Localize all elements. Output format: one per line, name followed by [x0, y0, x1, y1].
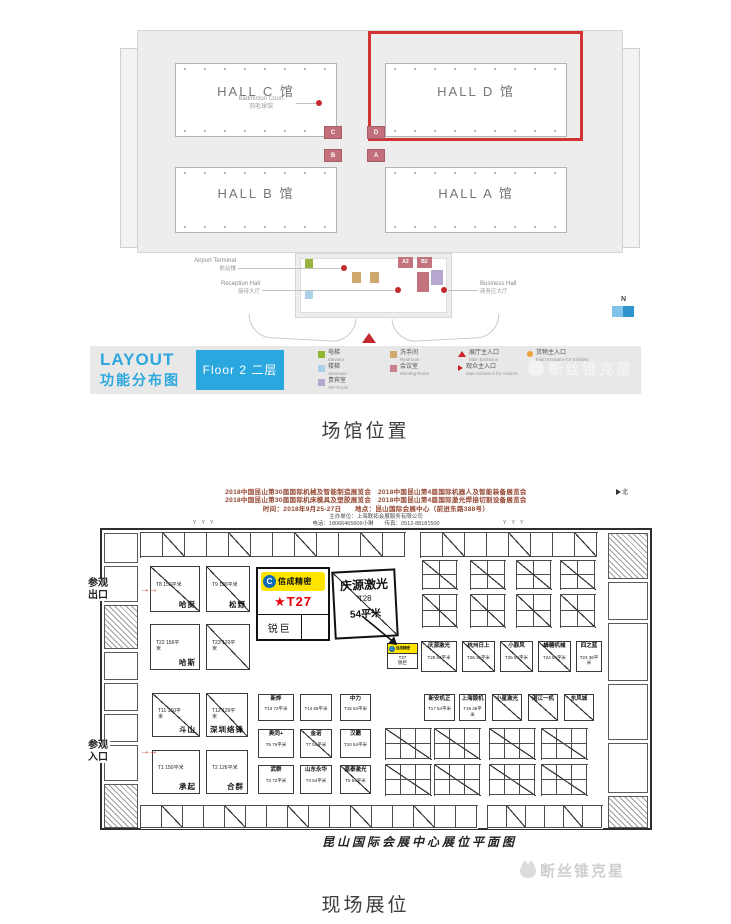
business-hall-cn: 商务区大厅 [480, 289, 508, 295]
page: HALL C 馆 Badminton Court 羽毛球馆 HALL D 馆 H… [0, 0, 731, 924]
booth-cell [361, 533, 383, 557]
legend-label-en: Main Entrance for Exhibits [536, 357, 589, 362]
booth-cell-diagonal [414, 806, 434, 827]
hall-c-sublabel: Badminton Court 羽毛球馆 [228, 96, 294, 111]
legend-label: 会议室Meeting Room [400, 364, 429, 376]
booth: 新烨T13 72平米 [258, 694, 294, 721]
legend-label: 贵宾室VIP Room [328, 378, 348, 390]
legend-square-icon [318, 351, 325, 358]
booth-label: 湛江一机 [529, 696, 557, 702]
hall-connector-c: C [324, 126, 342, 139]
booth-cell [564, 806, 583, 828]
cluster-diagonal [561, 561, 596, 590]
booth: 承起T1 150平米 [152, 750, 200, 794]
booth-label: 嘉泰激光 [341, 767, 370, 773]
booth-cell [351, 806, 372, 828]
legend-label-cn: 洗手间 [400, 350, 420, 357]
booth: 金诺T7 54平米 [300, 729, 332, 758]
booth-label: 斗山 [179, 726, 196, 734]
visitor-exit-label: 参观出口 [86, 578, 110, 601]
booth-label: 东风城 [565, 696, 593, 702]
cat-watermark-icon [528, 362, 544, 376]
mini-brand-name: 信成精密 [396, 646, 410, 651]
booth-cell [309, 806, 330, 828]
booth-label: 奥同+ [259, 731, 293, 737]
legend-label-en: Main Entrance [469, 357, 499, 362]
featured-company-name: 庆源激光 [334, 574, 395, 594]
cluster-diagonal [471, 595, 506, 628]
booth: 杭州日上T26 36平米 [462, 641, 495, 672]
booth-label: 新安机正 [425, 696, 454, 702]
caption-venue-location: 场馆位置 [0, 416, 731, 443]
booth-cell-diagonal [229, 533, 250, 556]
legend-square-icon [318, 379, 325, 386]
booth-cell [443, 533, 465, 557]
booth-cell [372, 806, 393, 828]
elevator-block [305, 259, 313, 268]
booth-cell [393, 806, 414, 828]
booth-cell-diagonal [225, 806, 245, 827]
booth-cluster [489, 728, 536, 760]
booth: T14 65平米 [300, 694, 332, 721]
booth-cell [488, 806, 507, 828]
corridor-room [608, 684, 648, 740]
booth-area: T17 54平米 [427, 706, 452, 711]
brand-logo-icon: C [263, 575, 276, 588]
cluster-diagonal [423, 595, 458, 628]
business-hall-annotation: Business Hall 商务区大厅 [480, 281, 550, 297]
booth-label: 汉霸 [341, 731, 370, 737]
booth-cell [207, 533, 229, 557]
booth-cell [583, 806, 602, 828]
booth-area: T26 36平米 [465, 655, 492, 660]
booth-cell [575, 533, 597, 557]
booth-label: 新烨 [259, 696, 293, 702]
cluster-diagonal [435, 765, 481, 796]
booth-cluster [140, 532, 406, 558]
hall-b-label: HALL B 馆 [176, 183, 336, 202]
room-b2: B2 [417, 257, 432, 268]
venue-left-wing [120, 48, 138, 248]
featured-booth-area: 54平米 [335, 603, 396, 621]
hall-connector-b: B [324, 149, 342, 162]
legend-square-icon [390, 351, 397, 358]
booth-cell [273, 533, 295, 557]
venue-right-wing [622, 48, 640, 248]
business-hall-en: Business Hall [480, 281, 516, 287]
booth-cell [163, 533, 185, 557]
legend-item: 观众主入口Main Entrance for Visitors [458, 364, 517, 376]
booth: 东风城 [564, 694, 594, 721]
booth-label: 哈斯 [179, 659, 196, 667]
watermark-bottom-text: 断丝锥克星 [540, 860, 625, 881]
hall-a-label: HALL A 馆 [386, 183, 566, 202]
booth-label: 承起 [179, 783, 196, 791]
booth-cell [267, 806, 288, 828]
booth-cluster [489, 764, 536, 796]
cluster-diagonal [542, 765, 588, 796]
hall-d-highlight [368, 31, 583, 141]
legend-label-en: Restroom [400, 357, 420, 362]
mini-highlight-booth: C 信成精密 T27 锐巨 [387, 643, 418, 669]
hall-b: HALL B 馆 [175, 167, 337, 233]
booth: 四之蓝T23 36平米 [576, 641, 602, 672]
staircase-block [305, 290, 313, 299]
booth-label: 小豚风 [501, 643, 532, 649]
booth-area: T10 54平米 [343, 742, 368, 747]
mini-booth-info: T27 锐巨 [388, 655, 417, 666]
booth-label: 中力 [341, 696, 370, 702]
corridor-room [104, 533, 138, 563]
legend-label-cn: 货物主入口 [536, 350, 589, 357]
corridor-room [104, 605, 138, 649]
booth-cell [251, 533, 273, 557]
booth-cluster [420, 532, 598, 558]
booth-cell [162, 806, 183, 828]
north-marker: 北 [616, 487, 628, 496]
booth: 深圳络锋T12 126平米 [206, 693, 248, 737]
cluster-diagonal [386, 729, 432, 760]
booth-area: T2 126平米 [212, 765, 238, 771]
booth-cluster [470, 594, 506, 628]
booth: T23 120平米 [206, 624, 250, 670]
expo-header-contact: 电话：18066465606小琳 传真：0512-88181500 [100, 519, 652, 527]
booth-cluster [541, 728, 588, 760]
booth-label: 杭州日上 [463, 643, 494, 649]
booth-cell [456, 806, 477, 828]
booth: 嘉泰激光T5 54平米 [340, 765, 371, 794]
booth: 山东永华T4 54平米 [300, 765, 332, 794]
booth-area: T13 72平米 [261, 706, 291, 711]
booth-area: T18 36平米 [462, 706, 483, 717]
apron-arc-right [391, 313, 500, 343]
booth-cell [507, 806, 526, 828]
legend-item: 贵宾室VIP Room [318, 378, 348, 390]
booth-area: T15 54平米 [343, 706, 368, 711]
restroom-block-1 [352, 272, 361, 283]
mini-company-name: 锐巨 [398, 660, 407, 665]
booth-cell [339, 533, 361, 557]
compass-icon-dark [623, 306, 634, 317]
corridor-room [104, 652, 138, 680]
legend-label-cn: 贵宾室 [328, 378, 348, 385]
floor-label: Floor 2 二层 [203, 363, 278, 377]
booth-cell [183, 806, 204, 828]
reception-hall-cn: 接待大厅 [238, 289, 260, 295]
corridor-room [104, 714, 138, 742]
cluster-diagonal [423, 561, 458, 590]
booth-cell [295, 533, 317, 557]
legend-label-en: VIP Room [328, 385, 348, 390]
booth-cluster [470, 560, 506, 590]
booth-area: T28 54平米 [424, 655, 454, 660]
legend-label: 观众主入口Main Entrance for Visitors [466, 364, 517, 376]
booth: 湛江一机 [528, 694, 558, 721]
compass-icon [612, 306, 623, 317]
booth: 斗山T11 150平米 [152, 693, 200, 737]
floor-label-box: Floor 2 二层 [196, 350, 284, 390]
legend-square-icon [390, 365, 397, 372]
legend-triangle-icon [458, 351, 466, 357]
mini-brand-badge: C 信成精密 [388, 644, 417, 654]
booth-area: T6 76平米 [261, 742, 291, 747]
booth-label: 山东永华 [301, 767, 331, 773]
booth-area: T22 156平米 [156, 640, 182, 652]
cat-watermark-icon [520, 864, 536, 878]
legend-label: 货物主入口Main Entrance for Exhibits [536, 350, 589, 362]
airport-terminal-cn: 航站楼 [219, 266, 236, 272]
legend-title-en: LAYOUT [100, 350, 174, 370]
cluster-diagonal [542, 729, 588, 760]
booth-cell [465, 533, 487, 557]
booth: 中力T15 54平米 [340, 694, 371, 721]
booth-cluster [140, 805, 478, 829]
restroom-block-2 [370, 272, 379, 283]
booth: 小星激光 [492, 694, 522, 721]
booth-cell [526, 806, 545, 828]
booth-cell [545, 806, 564, 828]
legend-label-cn: 电梯 [328, 350, 345, 357]
airport-dot [341, 265, 347, 271]
corridor-room [608, 533, 648, 579]
legend-label-cn: 楼梯 [328, 364, 347, 371]
legend-square-icon [318, 365, 325, 372]
corridor-room [104, 784, 138, 828]
room-b2-label: B2 [417, 257, 432, 267]
booth: 新安机正T17 54平米 [424, 694, 455, 721]
booth-cell-diagonal [509, 533, 530, 556]
watermark-bottom: 断丝锥克星 [520, 860, 625, 881]
booth: 上海锻机T18 36平米 [459, 694, 486, 721]
north-label: 北 [622, 487, 628, 496]
legend-item: 展厅主入口Main Entrance [458, 350, 499, 362]
booth-cluster [434, 728, 481, 760]
booth-cluster [541, 764, 588, 796]
booth: 哈斯T22 156平米 [150, 624, 200, 670]
badminton-leader-line [296, 103, 316, 104]
legend-item: 洗手间Restroom [390, 350, 420, 362]
meeting-room-block [417, 272, 429, 292]
booth-area: T3 72平米 [261, 778, 291, 783]
legend-label-cn: 展厅主入口 [469, 350, 499, 357]
cluster-diagonal [517, 561, 552, 590]
booth-cluster [385, 764, 432, 796]
booth-label: 四之蓝 [577, 643, 601, 649]
booth-cell-diagonal [162, 806, 182, 827]
highlight-booth-cells: 锐巨 [258, 614, 328, 639]
reception-dot [395, 287, 401, 293]
booth-area: T1 150平米 [158, 765, 184, 771]
booth-cell [421, 533, 443, 557]
legend-title-cn: 功能分布图 [100, 370, 180, 390]
booth-cell [414, 806, 435, 828]
legend-item: 楼梯Staircase [318, 364, 347, 376]
legend-label: 电梯Elevator [328, 350, 345, 362]
cluster-diagonal [471, 561, 506, 590]
booth-map-title: 昆山国际会展中心展位平面图 [322, 833, 517, 850]
booth-cell [317, 533, 339, 557]
booth-cluster [487, 805, 603, 829]
corridor-room [608, 796, 648, 828]
legend-label-en: Meeting Room [400, 371, 429, 376]
booth: 汉霸T10 54平米 [340, 729, 371, 758]
highlight-booth-number: ★T27 [258, 594, 328, 610]
booth-cell-diagonal [163, 533, 184, 556]
booth: 蜂糖机械T24 54平米 [538, 641, 571, 672]
booth-cluster [422, 594, 458, 628]
apron-arc-left [247, 313, 356, 343]
reception-hall-annotation: Reception Hall 接待大厅 [192, 281, 260, 297]
north-flag-icon [616, 489, 621, 495]
booth: 庆源激光T28 54平米 [421, 641, 457, 672]
visitor-entrance-label: 参观入口 [86, 740, 110, 763]
brand-name: 信成精密 [278, 576, 312, 587]
booth-cell [383, 533, 405, 557]
booth-cell-diagonal [295, 533, 316, 556]
booth-cluster [516, 594, 552, 628]
booth-cell [553, 533, 575, 557]
booth-label: 哈挺 [179, 601, 196, 609]
booth-cell-diagonal [288, 806, 308, 827]
booth-cell [141, 533, 163, 557]
legend-label: 楼梯Staircase [328, 364, 347, 376]
booth: 武群T3 72平米 [258, 765, 294, 794]
cluster-diagonal [490, 765, 536, 796]
corridor-room [608, 623, 648, 681]
booth-cell-diagonal [361, 533, 382, 556]
highlight-callout-booth: C 信成精密 ★T27 锐巨 [256, 567, 330, 641]
highlight-company-name: 锐巨 [258, 615, 302, 639]
featured-callout-booth: 庆源激光 T28 54平米 [331, 568, 398, 639]
booth-label: 蜂糖机械 [539, 643, 570, 649]
booth-label: 金诺 [301, 731, 331, 737]
booth-area: T11 150平米 [158, 708, 184, 720]
booth-cell-diagonal [443, 533, 464, 556]
legend-item: 电梯Elevator [318, 350, 345, 362]
legend-label-en: Main Entrance for Visitors [466, 371, 517, 376]
truss-mark-right: Y Y Y [503, 520, 525, 526]
mini-brand-logo-icon: C [389, 646, 395, 652]
cluster-diagonal [386, 765, 432, 796]
booth-area: T12 126平米 [212, 708, 238, 720]
business-leader-line [448, 290, 478, 291]
booth-cluster [560, 594, 596, 628]
legend-label-en: Elevator [328, 357, 345, 362]
booth-cell [509, 533, 531, 557]
booth-cell-diagonal [351, 806, 371, 827]
vip-room-block [431, 270, 443, 285]
booth: 奥同+T6 76平米 [258, 729, 294, 758]
reception-leader-line [262, 290, 394, 291]
booth-label: 庆源激光 [422, 643, 456, 649]
booth-label: 上海锻机 [460, 696, 485, 702]
booth-label: 武群 [259, 767, 293, 773]
booth-cell [229, 533, 251, 557]
legend-label-cn: 会议室 [400, 364, 429, 371]
truss-mark-left: Y Y Y [193, 520, 215, 526]
cluster-diagonal [561, 595, 596, 628]
booth-area: T25 54平米 [503, 655, 530, 660]
airport-terminal-annotation: Airport Terminal 航站楼 [168, 258, 236, 274]
booth-label: 小星激光 [493, 696, 521, 702]
booth-cell [225, 806, 246, 828]
booth-cell-diagonal [507, 806, 525, 827]
airport-terminal-en: Airport Terminal [194, 258, 236, 264]
cluster-diagonal [435, 729, 481, 760]
legend-label-cn: 观众主入口 [466, 364, 517, 371]
booth-label: 松野 [229, 601, 246, 609]
booth-cell [185, 533, 207, 557]
booth: 小豚风T25 54平米 [500, 641, 533, 672]
booth-cluster [385, 728, 432, 760]
booth-cluster [422, 560, 458, 590]
main-entrance-triangle [362, 333, 376, 343]
booth-cell-diagonal [575, 533, 596, 556]
visitor-entrance-arrows: →→ [140, 746, 156, 757]
airport-leader-line [238, 268, 340, 269]
booth-cluster [434, 764, 481, 796]
booth-cell [487, 533, 509, 557]
compass-north-label: N [621, 296, 626, 303]
booth-area: T7 54平米 [303, 742, 329, 747]
legend-label-en: Staircase [328, 371, 347, 376]
corridor-room [608, 582, 648, 620]
booth-cell-diagonal [564, 806, 582, 827]
booth-cluster [516, 560, 552, 590]
booth-cluster [560, 560, 596, 590]
booth-cell [288, 806, 309, 828]
booth-area: T8 150平米 [156, 582, 182, 588]
visitor-exit-arrows: →→ [140, 584, 156, 595]
booth-cell [141, 806, 162, 828]
badminton-court-cn: 羽毛球馆 [249, 104, 273, 110]
room-a2: A2 [398, 257, 413, 268]
legend-dot-icon [527, 351, 533, 357]
legend-item: 会议室Meeting Room [390, 364, 429, 376]
hall-connector-d: D [367, 126, 385, 139]
booth-cell [204, 806, 225, 828]
legend-label: 洗手间Restroom [400, 350, 420, 362]
booth-cell [246, 806, 267, 828]
booth: 松野T9 120平米 [206, 566, 250, 612]
legend-label: 展厅主入口Main Entrance [469, 350, 499, 362]
badminton-court-en: Badminton Court [238, 96, 283, 102]
booth-area: T23 120平米 [212, 640, 238, 652]
booth-area: T4 54平米 [303, 778, 329, 783]
room-a2-label: A2 [398, 257, 413, 267]
reception-hall-en: Reception Hall [221, 281, 260, 287]
cluster-diagonal [517, 595, 552, 628]
caption-onsite-booth: 现场展位 [0, 890, 731, 917]
cluster-diagonal [490, 729, 536, 760]
legend-item: 货物主入口Main Entrance for Exhibits [527, 350, 589, 362]
business-dot [441, 287, 447, 293]
booth: 哈挺T8 150平米 [150, 566, 200, 612]
badminton-dot [316, 100, 322, 106]
booth-label: 合群 [227, 783, 244, 791]
booth-label: 深圳络锋 [210, 726, 244, 734]
booth-cell [330, 806, 351, 828]
hall-a: HALL A 馆 [385, 167, 567, 233]
hall-connector-a: A [367, 149, 385, 162]
booth-area: T14 65平米 [303, 706, 329, 711]
booth-area: T24 54平米 [541, 655, 568, 660]
corridor-room [104, 683, 138, 711]
booth-cell [531, 533, 553, 557]
booth: 合群T2 126平米 [206, 750, 248, 794]
booth-area: T5 54平米 [343, 778, 368, 783]
booth-area: T23 36平米 [579, 655, 599, 666]
